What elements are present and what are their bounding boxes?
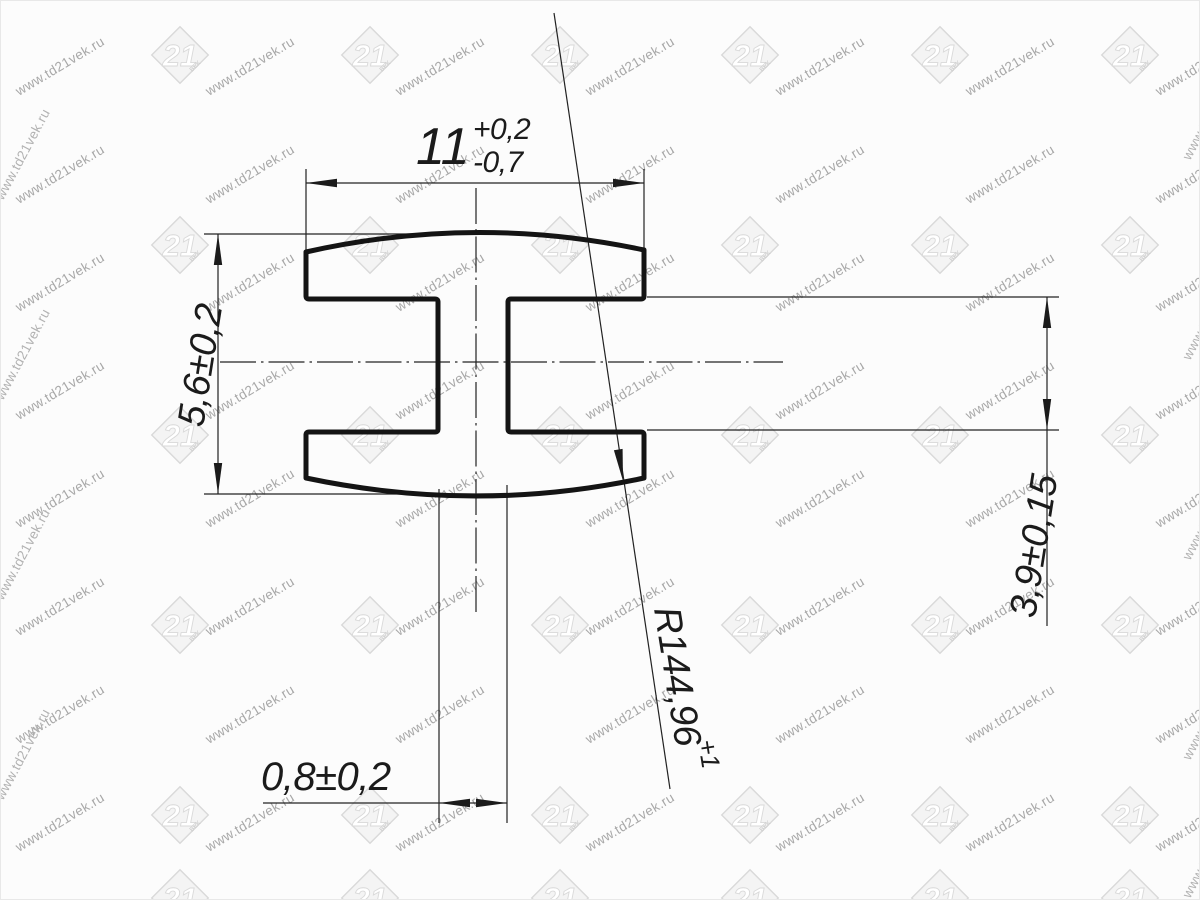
watermark-url-text: www.td21vek.ru (12, 466, 107, 531)
dim-text-radius-tol: +1 (692, 737, 726, 770)
watermark-url-text: www.td21vek.ru (962, 142, 1057, 207)
watermark-logo (1102, 217, 1159, 274)
watermark-logo (342, 27, 399, 84)
watermark-url-text: www.td21vek.ru (582, 358, 677, 423)
watermark-url-text: www.td21vek.ru (962, 34, 1057, 99)
dim-text-radius: R144,96 (645, 604, 709, 750)
watermark-url-text: www.td21vek.ru (12, 790, 107, 855)
watermark-url-text: www.td21vek.ru (12, 574, 107, 639)
watermark-url-text: www.td21vek.ru (1152, 790, 1200, 855)
watermark-logo (1102, 870, 1159, 900)
watermark-logo (1102, 27, 1159, 84)
watermark-logo (532, 407, 589, 464)
watermark-logo (722, 870, 779, 900)
watermark-logo (342, 407, 399, 464)
watermark-url-text: www.td21vek.ru (582, 34, 677, 99)
watermark-logo (912, 597, 969, 654)
watermark-logo (152, 787, 209, 844)
watermark-url-text: www.td21vek.ru (772, 250, 867, 315)
watermark-logo (152, 870, 209, 900)
watermark-url-text: www.td21vek.ru (12, 34, 107, 99)
watermark-url-text: www.td21vek.ru (392, 34, 487, 99)
watermark-logo (152, 597, 209, 654)
watermark-url-text: www.td21vek.ru (962, 682, 1057, 747)
watermark-url-text: www.td21vek.ru (1152, 250, 1200, 315)
dim-text-bottom-wall: 0,8±0,2 (261, 755, 391, 799)
watermark-logo (152, 217, 209, 274)
watermark-url-text: www.td21vek.ru (202, 574, 297, 639)
dim-text-top-tol-lower: -0,7 (473, 146, 525, 179)
watermark-logo (722, 27, 779, 84)
watermark-url-text: www.td21vek.ru (1, 306, 53, 403)
watermark-logo (722, 407, 779, 464)
watermark-logo (1102, 597, 1159, 654)
watermark-layer: www.td21vek.ruwww.td21vek.ruwww.td21vek.… (1, 27, 1200, 900)
watermark-logo (722, 597, 779, 654)
watermark-logo (342, 870, 399, 900)
arrowhead-right-up (1043, 297, 1051, 328)
watermark-logo (342, 597, 399, 654)
watermark-url-text: www.td21vek.ru (1152, 358, 1200, 423)
watermark-url-text: www.td21vek.ru (12, 358, 107, 423)
watermark-url-text: www.td21vek.ru (1152, 466, 1200, 531)
watermark-logo (912, 787, 969, 844)
watermark-url-text: www.td21vek.ru (772, 790, 867, 855)
watermark-logo (912, 407, 969, 464)
arrowhead-radius (614, 449, 623, 481)
watermark-url-text: www.td21vek.ru (772, 466, 867, 531)
watermark-url-text: www.td21vek.ru (202, 142, 297, 207)
watermark-logo (532, 217, 589, 274)
arrowhead-left-up (214, 234, 222, 265)
arrowhead-top-left (306, 179, 337, 187)
watermark-url-text: www.td21vek.ru (1152, 34, 1200, 99)
watermark-url-text: www.td21vek.ru (582, 250, 677, 315)
watermark-logo (722, 217, 779, 274)
watermark-logo (532, 597, 589, 654)
technical-drawing: 21 ВЕК www.td21vek.ruwww.td21vek.ruwww.t… (1, 1, 1200, 900)
watermark-logo (912, 870, 969, 900)
dim-text-top-tol-upper: +0,2 (473, 113, 531, 146)
watermark-logo (912, 27, 969, 84)
watermark-url-text: www.td21vek.ru (772, 142, 867, 207)
watermark-logo (1102, 787, 1159, 844)
watermark-url-text: www.td21vek.ru (202, 682, 297, 747)
watermark-logo (532, 787, 589, 844)
watermark-logo (532, 870, 589, 900)
watermark-url-text: www.td21vek.ru (772, 574, 867, 639)
watermark-url-text: www.td21vek.ru (962, 358, 1057, 423)
watermark-url-text: www.td21vek.ru (1152, 574, 1200, 639)
arrowhead-bottom-right (476, 799, 507, 807)
watermark-logo (912, 217, 969, 274)
dim-text-top-width: 11 (416, 118, 469, 176)
radius-leader-line (554, 13, 670, 789)
watermark-url-text: www.td21vek.ru (582, 142, 677, 207)
watermark-url-text: www.td21vek.ru (202, 790, 297, 855)
watermark-url-text: www.td21vek.ru (772, 34, 867, 99)
watermark-url-text: www.td21vek.ru (12, 250, 107, 315)
watermark-url-text: www.td21vek.ru (582, 790, 677, 855)
watermark-logo (1102, 407, 1159, 464)
watermark-logo (152, 27, 209, 84)
drawing-canvas: 21 ВЕК www.td21vek.ruwww.td21vek.ruwww.t… (0, 0, 1200, 900)
watermark-url-text: www.td21vek.ru (1, 706, 53, 803)
watermark-url-text: www.td21vek.ru (202, 34, 297, 99)
arrowhead-left-down (214, 463, 222, 494)
watermark-url-text: www.td21vek.ru (772, 358, 867, 423)
watermark-url-text: www.td21vek.ru (962, 250, 1057, 315)
arrowhead-right-down (1043, 399, 1051, 430)
watermark-url-text: www.td21vek.ru (772, 682, 867, 747)
watermark-logo (722, 787, 779, 844)
watermark-url-text: www.td21vek.ru (962, 790, 1057, 855)
